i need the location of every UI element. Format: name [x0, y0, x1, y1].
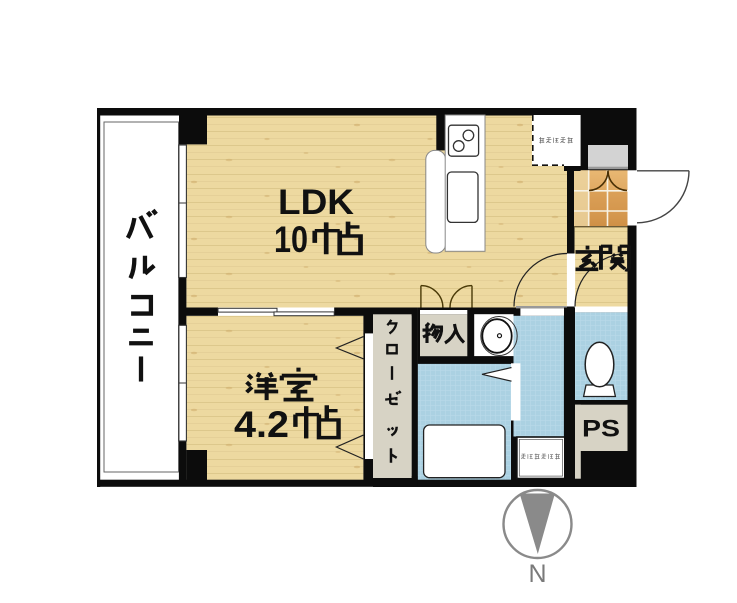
svg-text:4.2: 4.2 [234, 404, 289, 445]
svg-text:LDK: LDK [278, 182, 354, 222]
svg-text:N: N [528, 560, 546, 588]
svg-text:PS: PS [582, 416, 620, 443]
svg-text:10: 10 [274, 219, 308, 260]
